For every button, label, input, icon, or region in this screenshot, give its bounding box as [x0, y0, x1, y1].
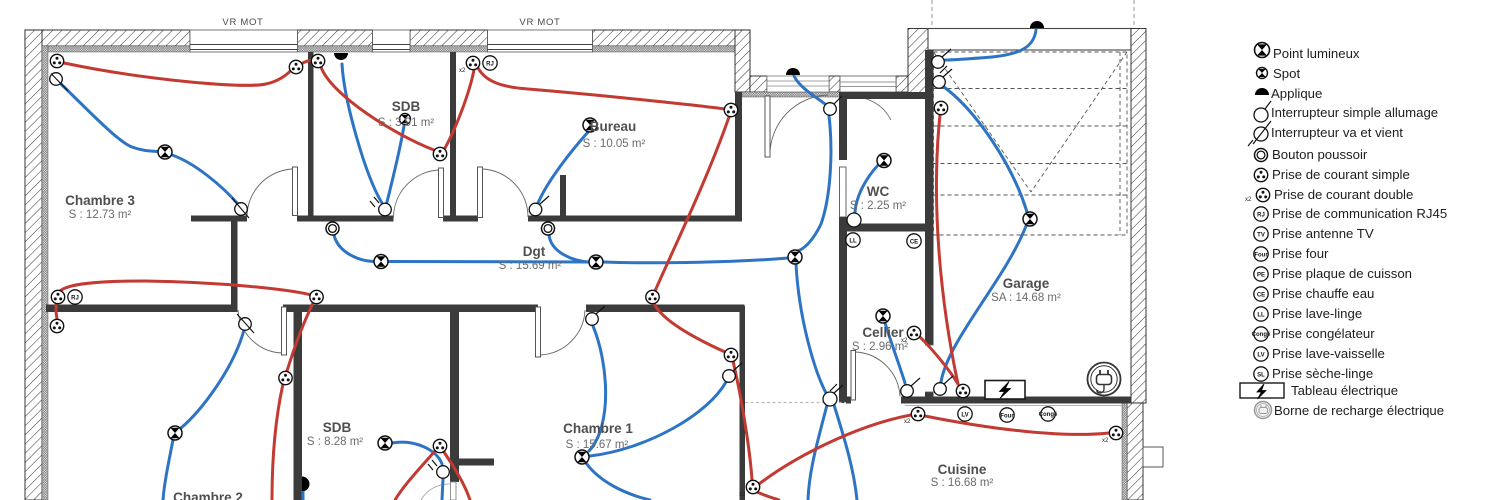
- svg-text:Cellier: Cellier: [862, 325, 904, 340]
- svg-text:SDB: SDB: [392, 99, 421, 114]
- svg-text:Garage: Garage: [1003, 276, 1050, 291]
- svg-text:Bouton poussoir: Bouton poussoir: [1272, 147, 1368, 162]
- svg-text:x2: x2: [1245, 197, 1252, 203]
- svg-text:Congé: Congé: [1039, 412, 1058, 418]
- svg-text:x2: x2: [459, 68, 466, 74]
- svg-text:TV: TV: [1257, 233, 1265, 239]
- svg-text:VR MOT: VR MOT: [222, 17, 263, 28]
- svg-text:S : 8.28 m²: S : 8.28 m²: [307, 436, 363, 448]
- svg-text:LV: LV: [1257, 353, 1264, 359]
- svg-text:Four: Four: [1254, 253, 1268, 259]
- svg-text:LL: LL: [849, 239, 857, 245]
- svg-text:Four: Four: [1000, 414, 1014, 420]
- svg-text:SA : 14.68 m²: SA : 14.68 m²: [991, 292, 1061, 304]
- svg-text:S : 3.91 m²: S : 3.91 m²: [378, 117, 434, 129]
- svg-text:Prise four: Prise four: [1272, 246, 1329, 261]
- svg-text:VR MOT: VR MOT: [519, 17, 560, 28]
- svg-text:Tableau électrique: Tableau électrique: [1291, 383, 1398, 398]
- svg-text:Prise antenne TV: Prise antenne TV: [1272, 226, 1374, 241]
- svg-text:Prise sèche-linge: Prise sèche-linge: [1272, 366, 1373, 381]
- svg-text:S : 12.73 m²: S : 12.73 m²: [69, 209, 132, 221]
- svg-text:S : 2.96 m²: S : 2.96 m²: [852, 341, 908, 353]
- svg-text:S : 2.25 m²: S : 2.25 m²: [850, 200, 906, 212]
- svg-text:CE: CE: [1257, 293, 1265, 299]
- svg-text:S : 10.05 m²: S : 10.05 m²: [583, 138, 646, 150]
- svg-text:WC: WC: [867, 184, 890, 199]
- svg-text:x2: x2: [904, 419, 911, 425]
- svg-text:LV: LV: [961, 413, 968, 419]
- svg-text:SL: SL: [1257, 373, 1265, 379]
- svg-text:Interrupteur simple allumage: Interrupteur simple allumage: [1271, 105, 1438, 120]
- svg-text:Interrupteur va et vient: Interrupteur va et vient: [1271, 125, 1403, 140]
- svg-text:Applique: Applique: [1271, 86, 1322, 101]
- svg-text:S : 15.69 m²: S : 15.69 m²: [499, 260, 562, 272]
- svg-text:RJ: RJ: [71, 296, 79, 302]
- svg-text:Bureau: Bureau: [590, 119, 637, 134]
- svg-text:Prise de courant simple: Prise de courant simple: [1272, 167, 1410, 182]
- svg-text:Spot: Spot: [1273, 66, 1300, 81]
- svg-text:S : 15.67 m²: S : 15.67 m²: [566, 439, 629, 451]
- svg-text:Borne de recharge électrique: Borne de recharge électrique: [1274, 403, 1444, 418]
- svg-text:Chambre 2: Chambre 2: [173, 490, 243, 500]
- svg-text:Point lumineux: Point lumineux: [1273, 46, 1360, 61]
- svg-text:Congé: Congé: [1252, 332, 1271, 338]
- svg-text:SDB: SDB: [323, 420, 352, 435]
- svg-text:Prise de communication RJ45: Prise de communication RJ45: [1272, 206, 1447, 221]
- svg-text:Prise congélateur: Prise congélateur: [1272, 326, 1375, 341]
- svg-text:Dgt: Dgt: [523, 244, 546, 259]
- svg-text:RJ: RJ: [1257, 213, 1265, 219]
- svg-text:Cuisine: Cuisine: [938, 462, 987, 477]
- svg-text:LL: LL: [1257, 313, 1265, 319]
- svg-text:x2: x2: [1102, 438, 1109, 444]
- svg-text:Prise lave-vaisselle: Prise lave-vaisselle: [1272, 346, 1385, 361]
- svg-text:Chambre 3: Chambre 3: [65, 193, 135, 208]
- svg-text:Prise chauffe eau: Prise chauffe eau: [1272, 286, 1374, 301]
- svg-text:PE: PE: [1257, 273, 1265, 279]
- svg-text:Prise de courant double: Prise de courant double: [1274, 187, 1413, 202]
- svg-text:CE: CE: [910, 240, 918, 246]
- svg-text:Prise plaque de cuisson: Prise plaque de cuisson: [1272, 266, 1412, 281]
- svg-text:Chambre 1: Chambre 1: [563, 421, 633, 436]
- svg-text:S : 16.68 m²: S : 16.68 m²: [931, 477, 994, 489]
- svg-text:x2: x2: [739, 492, 746, 498]
- svg-text:RJ: RJ: [486, 62, 494, 68]
- svg-text:Prise lave-linge: Prise lave-linge: [1272, 306, 1362, 321]
